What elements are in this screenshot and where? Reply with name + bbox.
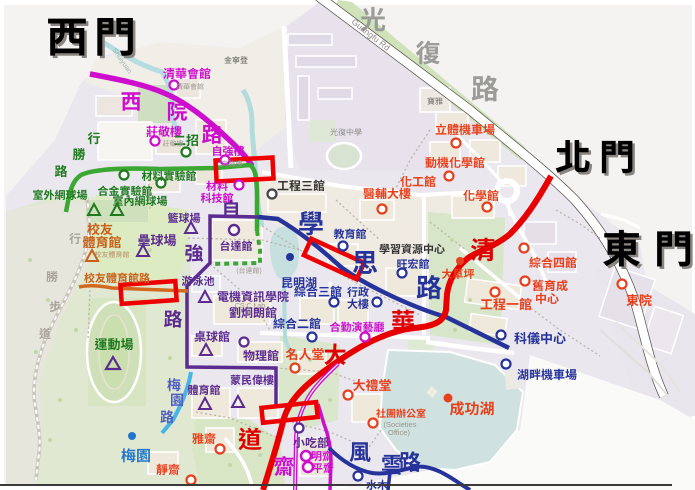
svg-text:CS:C Lab: CS:C Lab (235, 303, 265, 310)
svg-text:Office): Office) (388, 428, 410, 437)
